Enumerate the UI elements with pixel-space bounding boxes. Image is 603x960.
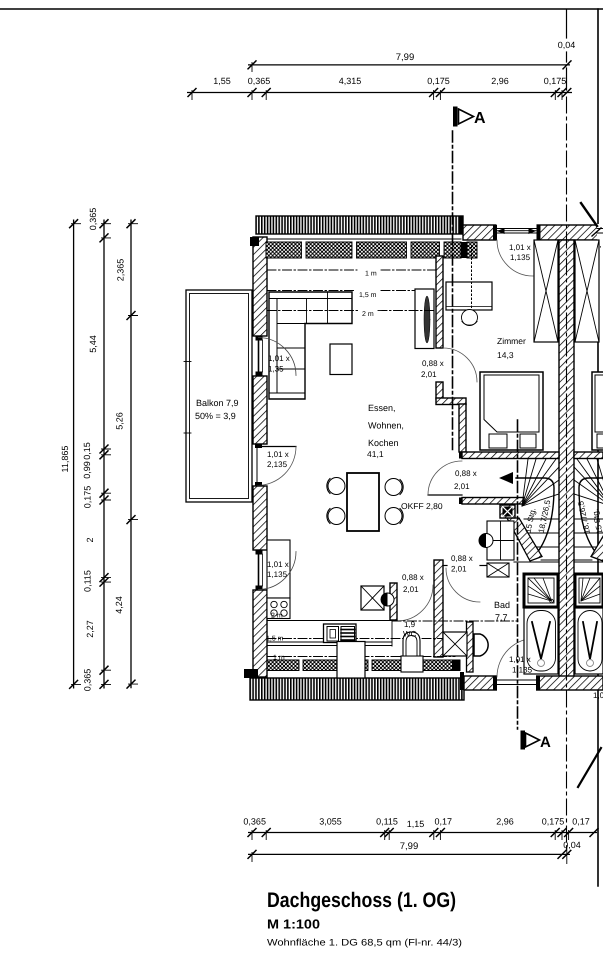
svg-text:18,7/26,5: 18,7/26,5 — [537, 499, 553, 534]
svg-text:41,1: 41,1 — [367, 449, 384, 459]
svg-text:0,365: 0,365 — [243, 817, 266, 827]
svg-text:0,115: 0,115 — [83, 570, 93, 592]
svg-text:1,01 x: 1,01 x — [509, 655, 531, 664]
svg-text:2,135: 2,135 — [267, 460, 288, 469]
svg-text:0,175: 0,175 — [542, 817, 565, 827]
svg-text:4,24: 4,24 — [114, 596, 124, 614]
svg-text:1 m: 1 m — [365, 271, 377, 278]
svg-text:0,88 x: 0,88 x — [422, 359, 444, 368]
svg-text:2,96: 2,96 — [491, 76, 509, 86]
svg-text:0,175: 0,175 — [544, 76, 567, 86]
svg-text:Wohnen,: Wohnen, — [368, 421, 404, 431]
svg-text:0,365: 0,365 — [88, 208, 98, 231]
svg-text:1,01 x: 1,01 x — [267, 450, 289, 459]
svg-text:7,99: 7,99 — [400, 841, 419, 852]
svg-text:7,99: 7,99 — [396, 52, 415, 63]
svg-text:1 m: 1 m — [273, 655, 285, 662]
svg-text:0,17: 0,17 — [435, 817, 453, 827]
svg-text:1,9: 1,9 — [404, 620, 416, 629]
svg-text:0,365: 0,365 — [83, 669, 93, 692]
svg-text:2 m: 2 m — [271, 613, 283, 620]
svg-text:4,315: 4,315 — [339, 76, 362, 86]
svg-text:0,88 x: 0,88 x — [451, 554, 473, 563]
svg-text:OKFF 2,80: OKFF 2,80 — [401, 501, 443, 511]
svg-text:Dachgeschoss (1. OG): Dachgeschoss (1. OG) — [267, 889, 456, 912]
svg-text:0,115: 0,115 — [376, 817, 398, 827]
svg-text:A: A — [474, 110, 486, 127]
svg-text:2,27: 2,27 — [85, 620, 95, 638]
svg-text:1,5 m: 1,5 m — [266, 636, 284, 643]
svg-text:A: A — [540, 734, 551, 751]
svg-text:0,175: 0,175 — [83, 486, 93, 509]
svg-text:1,35: 1,35 — [268, 365, 284, 374]
svg-text:0,88 x: 0,88 x — [455, 469, 477, 478]
svg-text:0,88 x: 0,88 x — [402, 573, 424, 582]
svg-text:1,135: 1,135 — [510, 253, 531, 262]
svg-text:18,7/26,5: 18,7/26,5 — [576, 500, 592, 535]
svg-text:2,01: 2,01 — [451, 565, 467, 574]
svg-text:1,135: 1,135 — [267, 570, 288, 579]
svg-text:0,99: 0,99 — [82, 461, 92, 479]
svg-text:2,01: 2,01 — [421, 370, 437, 379]
svg-text:Balkon 7,9: Balkon 7,9 — [196, 398, 239, 408]
svg-text:1,01 x: 1,01 x — [267, 560, 289, 569]
svg-text:0,365: 0,365 — [248, 76, 271, 86]
svg-text:2,01: 2,01 — [454, 482, 470, 491]
svg-text:2,01: 2,01 — [403, 585, 419, 594]
svg-text:0,15: 0,15 — [82, 442, 92, 460]
svg-text:Essen,: Essen, — [368, 403, 396, 413]
svg-text:2,365: 2,365 — [116, 259, 126, 282]
svg-text:WC: WC — [403, 630, 417, 639]
svg-text:2: 2 — [85, 537, 95, 542]
svg-text:5,44: 5,44 — [88, 335, 98, 353]
svg-text:M 1:100: M 1:100 — [267, 917, 320, 932]
svg-text:1,01 x: 1,01 x — [509, 243, 531, 252]
svg-text:14,3: 14,3 — [497, 350, 514, 360]
svg-text:0,175: 0,175 — [427, 76, 450, 86]
svg-text:11,865: 11,865 — [60, 446, 70, 473]
svg-text:1,15: 1,15 — [407, 819, 425, 829]
svg-text:1,55: 1,55 — [213, 76, 231, 86]
svg-text:1,01 x: 1,01 x — [268, 354, 290, 363]
svg-text:5,26: 5,26 — [114, 412, 124, 430]
svg-text:50% = 3,9: 50% = 3,9 — [195, 411, 236, 421]
svg-text:0,04: 0,04 — [558, 40, 576, 50]
svg-text:15 Stg.: 15 Stg. — [524, 507, 538, 534]
svg-text:1,0: 1,0 — [593, 691, 603, 700]
svg-text:1,135: 1,135 — [512, 666, 533, 675]
svg-text:Wohnfläche 1. DG 68,5 qm (Fl-n: Wohnfläche 1. DG 68,5 qm (Fl-nr. 44/3) — [267, 938, 462, 949]
svg-text:2,96: 2,96 — [496, 817, 514, 827]
svg-text:2 m: 2 m — [362, 311, 374, 318]
svg-text:Kochen: Kochen — [368, 438, 399, 448]
svg-text:15 Stg.: 15 Stg. — [591, 508, 603, 535]
svg-text:Bad: Bad — [494, 600, 510, 610]
svg-text:1,5 m: 1,5 m — [359, 292, 377, 299]
svg-text:3,055: 3,055 — [319, 817, 342, 827]
svg-text:0,04: 0,04 — [563, 840, 581, 850]
svg-text:7,7: 7,7 — [495, 613, 508, 623]
svg-text:0,17: 0,17 — [572, 817, 590, 827]
svg-text:Zimmer: Zimmer — [497, 336, 526, 346]
